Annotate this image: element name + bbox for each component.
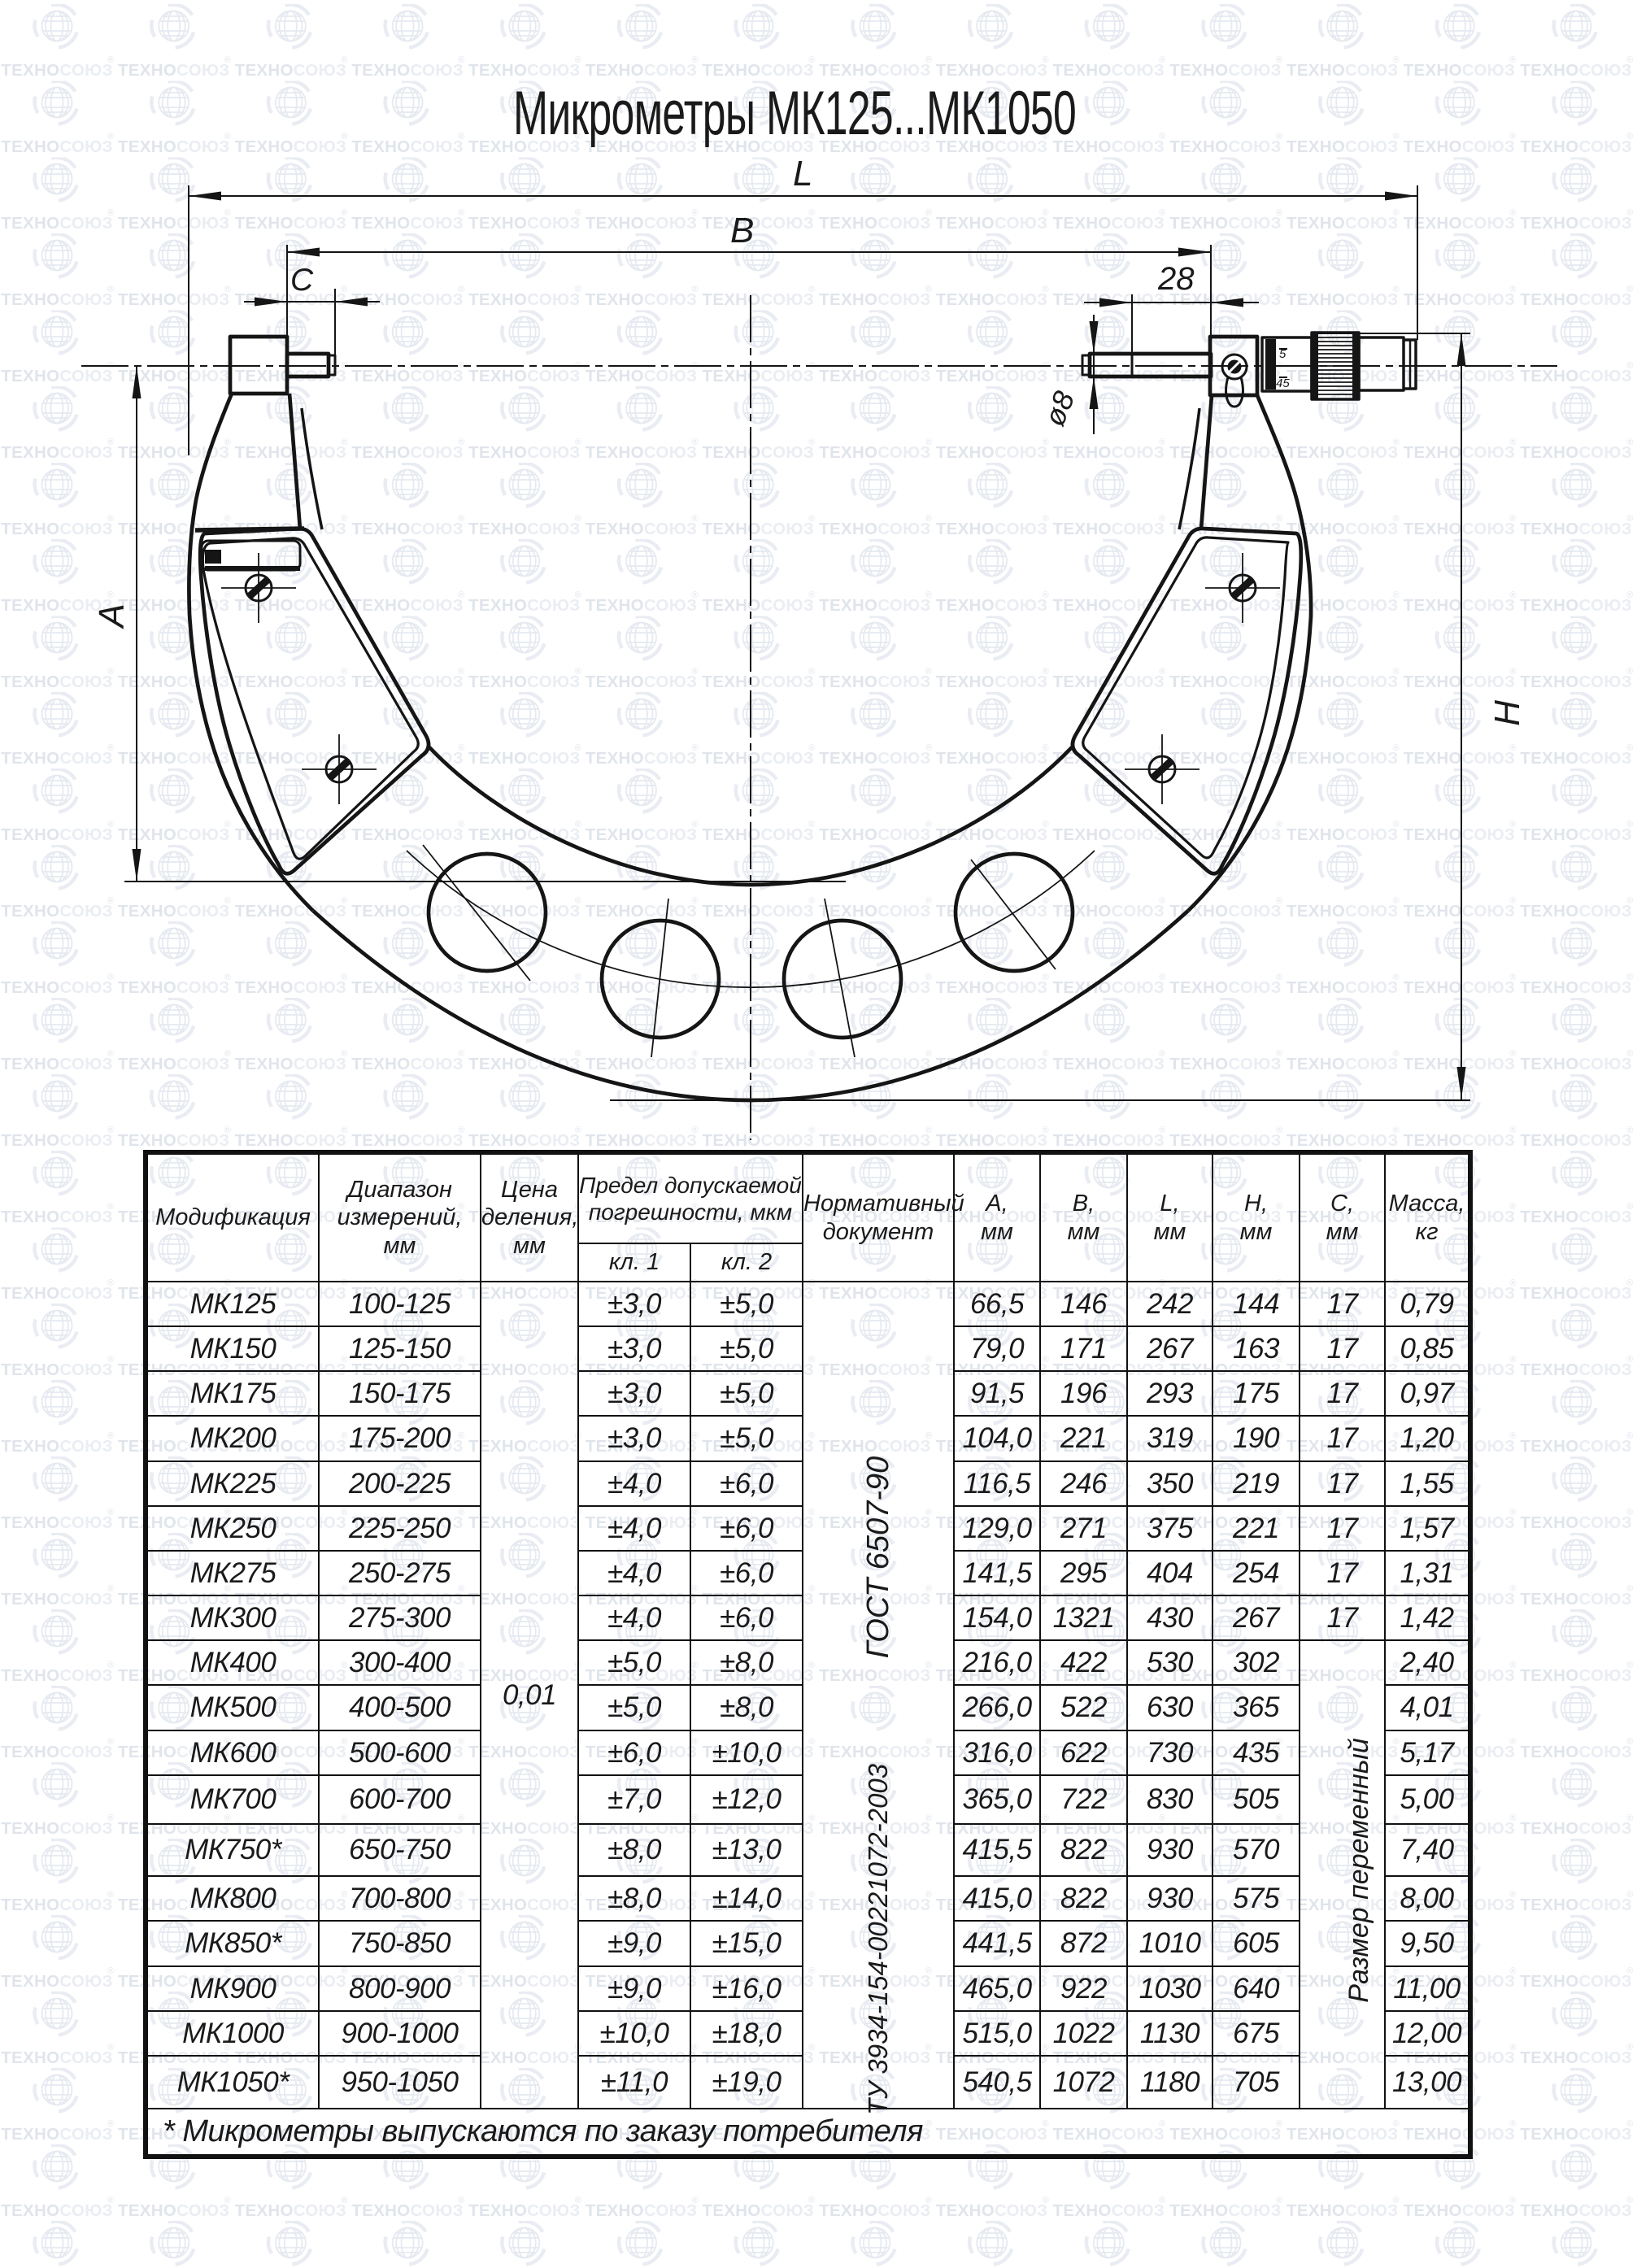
svg-text:H: H [1487, 700, 1527, 726]
svg-text:B: B [730, 211, 754, 250]
svg-text:L: L [793, 154, 812, 194]
svg-text:A: A [92, 603, 132, 629]
svg-text:28: 28 [1157, 261, 1195, 297]
svg-text:45: 45 [1276, 377, 1290, 390]
svg-text:C: C [290, 263, 314, 298]
svg-text:5: 5 [1279, 347, 1287, 361]
